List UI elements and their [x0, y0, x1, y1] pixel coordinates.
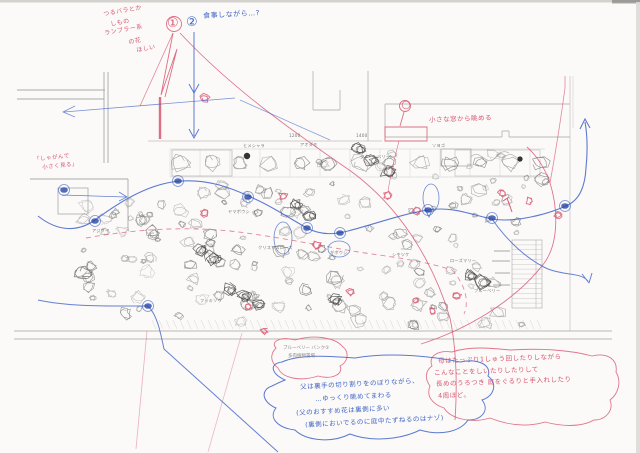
plant-label: ブルーベリー [474, 289, 500, 293]
plant-label: ソヨゴ [432, 144, 445, 148]
plant-label: シモツケ [392, 253, 410, 257]
dimension-label: 1200 [289, 134, 300, 138]
caption-blueberry-line2: 多肉植物置場 [288, 355, 315, 360]
marker-1-circled: ① [167, 17, 179, 30]
plant-label: ヤマボウシ [228, 210, 250, 214]
caption-blueberry-line1: ブルーベリー バンク② [283, 347, 329, 352]
marker-2-circled: ② [186, 16, 198, 29]
plant-label: ギボウシ [330, 251, 348, 255]
plant-label: フッキソウ [200, 299, 222, 303]
plant-label: クリスマスローズ [258, 246, 293, 250]
plant-label: アジサイ [92, 229, 109, 233]
plant-label: ジューンベリー [360, 155, 390, 159]
pencil-structures [14, 71, 612, 339]
plant-label: ローズマリー [450, 259, 476, 263]
vegetation-scribbles [74, 143, 550, 330]
note-mother-line4: 4周ほど。 [438, 392, 471, 400]
blue-route-bottom [38, 300, 278, 452]
plant-label: ヒメシャラ [243, 144, 265, 148]
plant-label: アオダモ [300, 143, 318, 147]
blue-route-main [38, 122, 587, 234]
scanned-plan-page: つるバラとか しもの ランブラー系 の花 ほしい ① ② 食事しながら…? 「し… [0, 0, 640, 453]
dimension-label: 1400 [356, 134, 367, 138]
